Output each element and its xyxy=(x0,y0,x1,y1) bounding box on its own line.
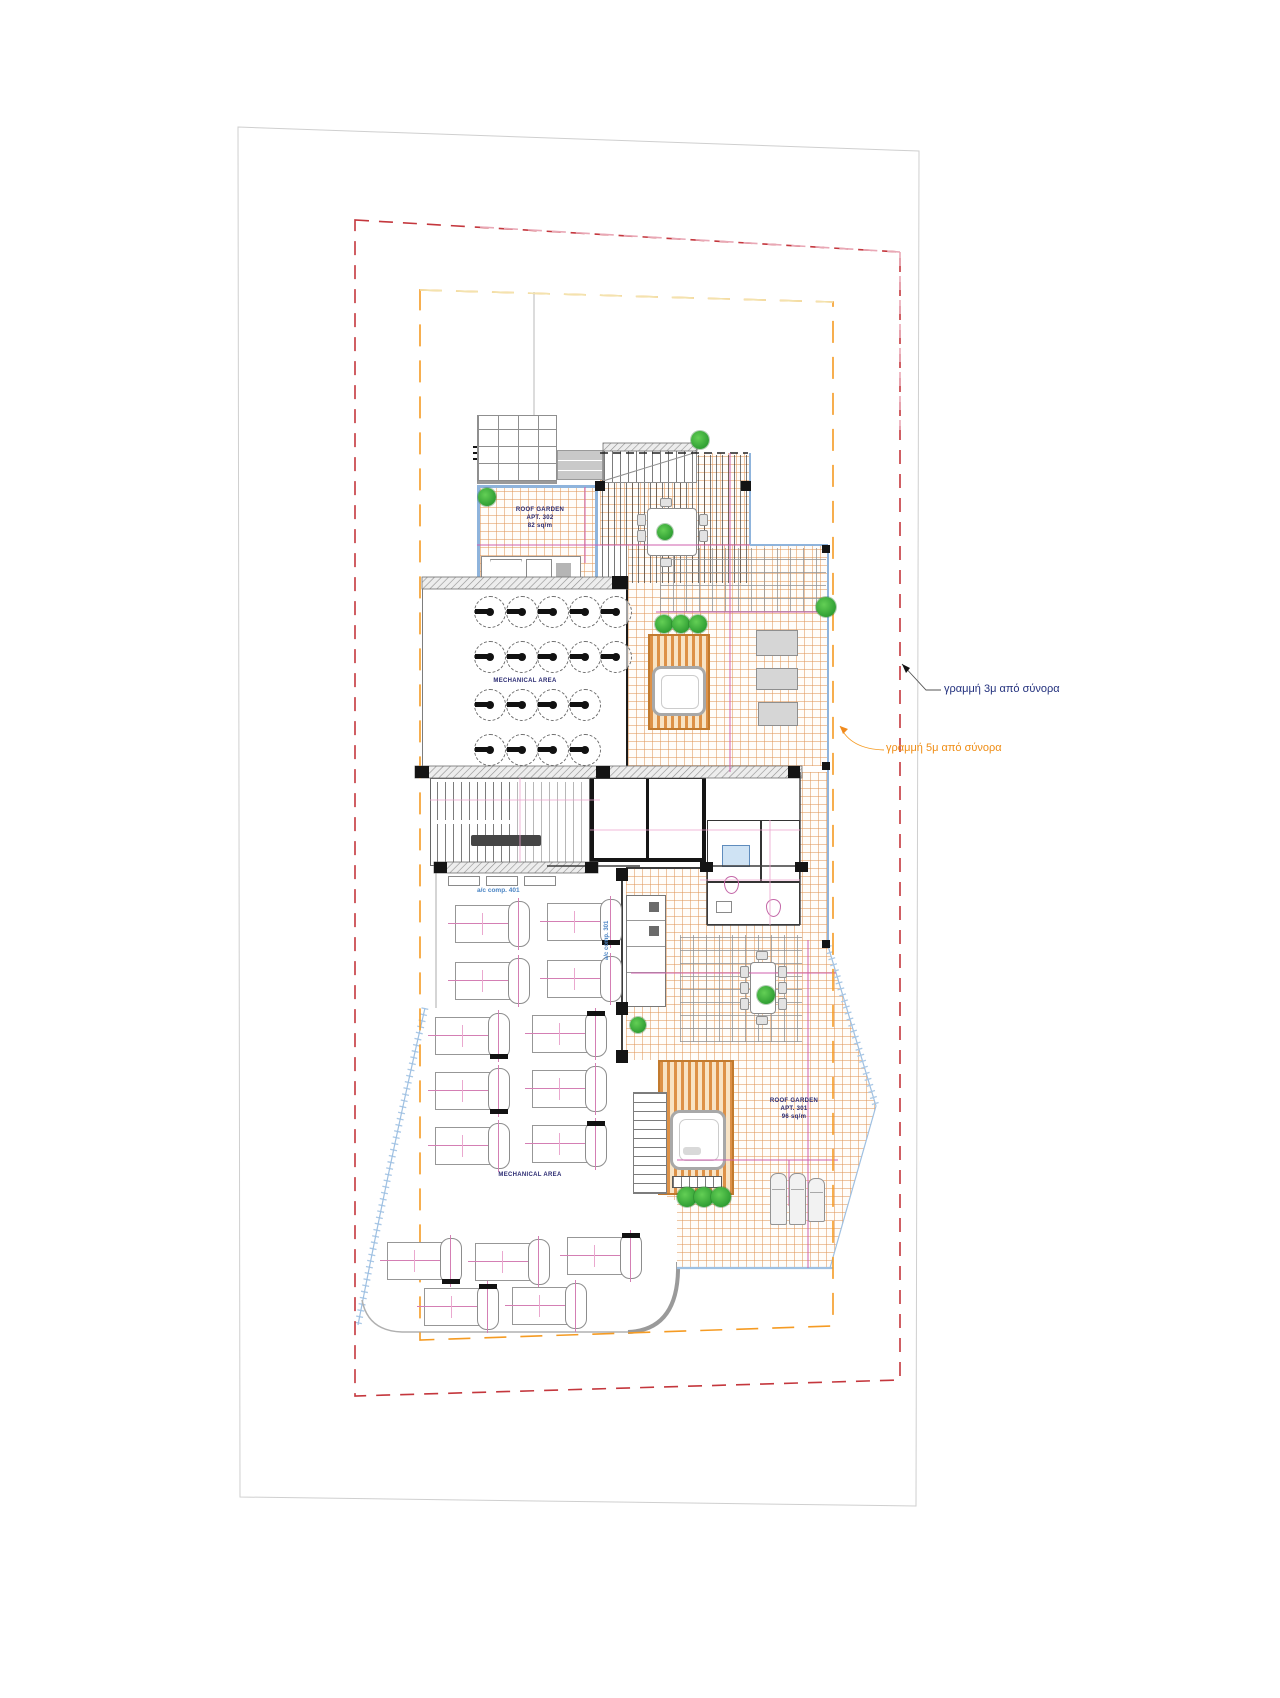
fan-icon xyxy=(569,641,601,673)
pergola-grid-middle xyxy=(660,548,826,612)
chair xyxy=(778,998,787,1010)
ac-fan-unit xyxy=(508,958,530,1004)
wall-column-block xyxy=(822,545,830,553)
ac-condenser-unit xyxy=(455,905,513,943)
ac-comp-301-label: a/c comp. 301 xyxy=(604,921,610,960)
fan-icon xyxy=(506,734,538,766)
ac-condenser-unit xyxy=(567,1237,625,1275)
ac-fan-unit xyxy=(585,1121,607,1167)
tree-icon xyxy=(478,488,496,506)
roof-garden-301-line2: APT. 301 xyxy=(780,1106,807,1112)
chair xyxy=(660,498,672,507)
fan-icon xyxy=(569,596,601,628)
ac-condenser-unit xyxy=(387,1242,445,1280)
ac-condenser-unit xyxy=(435,1127,493,1165)
chair xyxy=(699,514,708,526)
sun-lounger xyxy=(789,1173,806,1225)
fan-icon xyxy=(506,596,538,628)
chair xyxy=(778,982,787,994)
annotation-5m: γραμμή 5μ από σύνορα xyxy=(886,742,1002,754)
vent-box xyxy=(448,876,480,886)
ac-condenser-unit xyxy=(424,1288,482,1326)
sun-lounger xyxy=(808,1178,825,1222)
fan-icon xyxy=(569,734,601,766)
fan-icon xyxy=(569,689,601,721)
fan-icon xyxy=(537,596,569,628)
roof-garden-301-label: ROOF GARDEN APT. 301 96 sq/m xyxy=(760,1097,828,1121)
chair xyxy=(660,558,672,567)
wall-column-block xyxy=(612,576,628,589)
fan-icon xyxy=(537,689,569,721)
fan-icon xyxy=(506,689,538,721)
chair xyxy=(740,982,749,994)
chair xyxy=(756,1016,768,1025)
vent-box xyxy=(524,876,556,886)
fan-icon xyxy=(474,689,506,721)
stair-run-top xyxy=(603,450,697,483)
fan-icon xyxy=(537,734,569,766)
elevator-shaft xyxy=(590,775,706,862)
roof-garden-302-line2: APT. 302 xyxy=(526,515,553,521)
ac-condenser-unit xyxy=(532,1070,590,1108)
ac-fan-unit xyxy=(528,1239,550,1285)
tree-icon xyxy=(691,431,709,449)
bathrooms xyxy=(707,820,800,925)
tree-icon xyxy=(816,597,836,617)
tree-icon xyxy=(757,986,775,1004)
jacuzzi-lower xyxy=(670,1110,726,1170)
ac-condenser-unit xyxy=(547,960,605,998)
ac-fan-unit xyxy=(488,1123,510,1169)
sofa xyxy=(756,630,798,656)
fan-icon xyxy=(474,596,506,628)
roof-garden-301-line3: 96 sq/m xyxy=(782,1114,806,1120)
ac-comp-401-label: a/c comp. 401 xyxy=(477,887,520,894)
roof-garden-302-label: ROOF GARDEN APT. 302 82 sq/m xyxy=(500,506,580,530)
ac-condenser-unit xyxy=(532,1125,590,1163)
wall-column-block xyxy=(741,481,751,491)
fan-icon xyxy=(600,641,632,673)
toilet-icon xyxy=(766,899,781,917)
stair-label-bar xyxy=(471,835,541,846)
fan-icon xyxy=(537,641,569,673)
wall-column-block xyxy=(595,481,605,491)
wall-column-block xyxy=(795,862,808,872)
vent-box xyxy=(486,876,518,886)
chair xyxy=(637,514,646,526)
mechanical-area-lower-label: MECHANICAL AREA xyxy=(470,1171,590,1179)
fan-icon xyxy=(474,641,506,673)
tree-icon xyxy=(630,1017,646,1033)
sofa xyxy=(758,702,798,726)
leader-3m-arrow xyxy=(902,664,910,673)
sink-icon xyxy=(716,901,732,913)
ac-fan-unit xyxy=(585,1011,607,1057)
chair xyxy=(756,951,768,960)
wall-column-block xyxy=(415,766,429,778)
ac-condenser-unit xyxy=(475,1243,533,1281)
fan-icon xyxy=(474,734,506,766)
ac-condenser-unit xyxy=(435,1017,493,1055)
counter-box xyxy=(526,559,552,579)
tree-icon xyxy=(711,1187,731,1207)
leader-5m xyxy=(840,726,884,750)
stair-landing-steps xyxy=(557,450,603,480)
wall-column-block xyxy=(596,766,610,778)
jacuzzi-steps xyxy=(672,1176,722,1188)
door-block xyxy=(556,563,571,583)
roof-garden-302-line1: ROOF GARDEN xyxy=(516,507,564,513)
leader-5m-arrow xyxy=(840,726,848,734)
mechanical-area-upper-label: MECHANICAL AREA xyxy=(465,677,585,685)
toilet-icon xyxy=(724,876,739,894)
ac-fan-unit xyxy=(488,1013,510,1059)
wall-column-block xyxy=(822,940,830,948)
annotation-3m: γραμμή 3μ από σύνορα xyxy=(944,683,1060,695)
ac-fan-unit xyxy=(585,1066,607,1112)
ac-fan-unit xyxy=(477,1284,499,1330)
chair xyxy=(778,966,787,978)
ac-fan-unit xyxy=(488,1068,510,1114)
ac-condenser-unit xyxy=(435,1072,493,1110)
wall-column-block xyxy=(616,1050,628,1063)
sink-icon xyxy=(490,559,522,579)
wall-column-block xyxy=(585,862,598,873)
ac-fan-unit xyxy=(620,1233,642,1279)
ac-fan-unit xyxy=(508,901,530,947)
chair xyxy=(699,530,708,542)
fan-icon xyxy=(600,596,632,628)
chair xyxy=(740,966,749,978)
fan-icon xyxy=(506,641,538,673)
wall-column-block xyxy=(700,862,713,872)
ac-condenser-unit xyxy=(455,962,513,1000)
tree-icon xyxy=(655,615,673,633)
outdoor-kitchen xyxy=(626,895,666,1007)
chair xyxy=(637,530,646,542)
wall-column-block xyxy=(616,868,628,881)
wall-column-block xyxy=(822,762,830,770)
tree-icon xyxy=(657,524,673,540)
leader-3m xyxy=(902,664,941,690)
wall-column-block xyxy=(788,766,800,778)
roof-garden-302-line3: 82 sq/m xyxy=(528,523,552,529)
ac-condenser-unit xyxy=(532,1015,590,1053)
chair xyxy=(740,998,749,1010)
jacuzzi-middle xyxy=(652,666,706,716)
wall-column-block xyxy=(616,1002,628,1015)
stair-grid-block xyxy=(477,415,557,484)
floor-plan-sheet: ROOF GARDEN APT. 302 82 sq/m ROOF GARDEN… xyxy=(0,0,1280,1698)
side-stair-strip xyxy=(633,1092,667,1194)
sofa xyxy=(756,668,798,690)
wall-column-block xyxy=(434,862,447,873)
ac-fan-unit xyxy=(600,956,622,1002)
sun-lounger xyxy=(770,1173,787,1225)
stair-room xyxy=(430,778,590,866)
ac-condenser-unit xyxy=(512,1287,570,1325)
ac-fan-unit xyxy=(565,1283,587,1329)
shower-icon xyxy=(722,845,750,867)
roof-garden-301-line1: ROOF GARDEN xyxy=(770,1098,818,1104)
tree-icon xyxy=(672,615,690,633)
ac-condenser-unit xyxy=(547,903,605,941)
ac-fan-unit xyxy=(440,1238,462,1284)
tree-icon xyxy=(689,615,707,633)
